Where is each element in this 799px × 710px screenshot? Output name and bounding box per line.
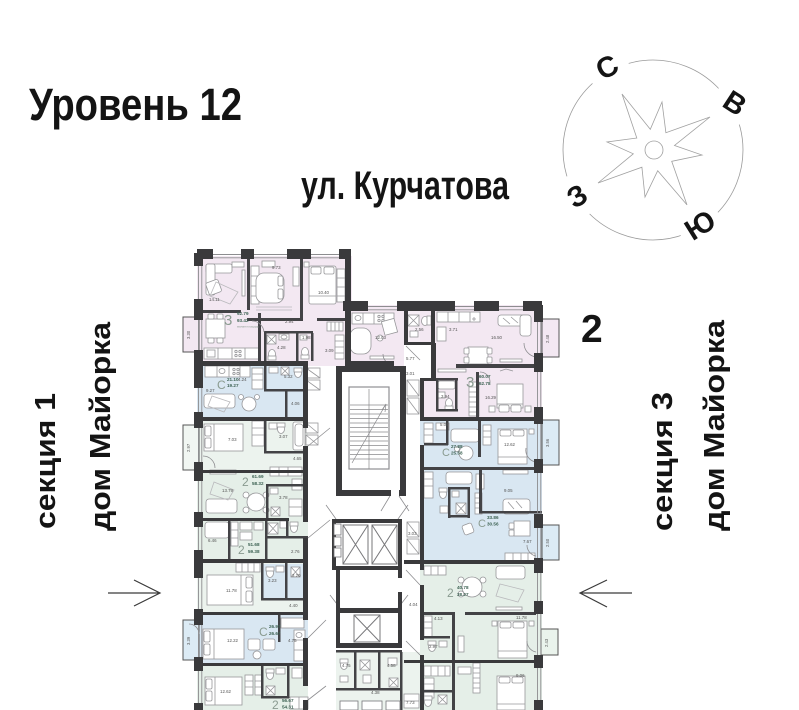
svg-text:4.13: 4.13 [434,616,443,621]
svg-text:2.94: 2.94 [285,319,294,324]
svg-text:58.32: 58.32 [252,481,264,486]
svg-text:7.73: 7.73 [406,700,415,705]
svg-text:12.62: 12.62 [220,689,232,694]
svg-text:12.62: 12.62 [504,442,516,447]
svg-text:ул. Курчатова: ул. Курчатова [301,164,510,208]
svg-text:9.05: 9.05 [504,488,513,493]
svg-text:11.78: 11.78 [516,615,527,620]
svg-text:С: С [442,447,450,459]
svg-text:3.71: 3.71 [449,327,458,332]
svg-text:С: С [259,625,268,639]
svg-text:2: 2 [581,308,603,351]
svg-text:2: 2 [238,543,245,557]
svg-text:2: 2 [447,586,454,600]
svg-text:2.50: 2.50 [545,538,550,547]
svg-text:26.67: 26.67 [269,631,281,636]
svg-text:27.88: 27.88 [451,444,463,449]
svg-text:С: С [478,518,486,530]
svg-text:56.67: 56.67 [282,698,294,703]
svg-text:10.40: 10.40 [318,290,330,295]
svg-text:7.03: 7.03 [228,437,237,442]
svg-text:25.58: 25.58 [451,451,463,456]
svg-text:30.56: 30.56 [487,522,499,527]
svg-text:2.48: 2.48 [545,334,550,343]
svg-text:19.27: 19.27 [227,383,239,388]
svg-text:4.38: 4.38 [371,690,380,695]
svg-text:4.58: 4.58 [387,663,396,668]
svg-text:62.78: 62.78 [479,381,491,386]
svg-text:33.86: 33.86 [487,515,499,520]
svg-text:13.79: 13.79 [222,488,234,493]
svg-text:Уровень 12: Уровень 12 [29,79,242,130]
svg-text:2: 2 [272,698,279,710]
svg-text:7.67: 7.67 [523,539,532,544]
svg-text:секция 1: секция 1 [30,393,62,529]
svg-text:3: 3 [224,312,232,329]
svg-text:6.46: 6.46 [208,538,217,543]
svg-text:3.01: 3.01 [406,371,415,376]
svg-text:4.24: 4.24 [238,377,247,382]
svg-text:54.31: 54.31 [282,705,294,710]
svg-text:9.27: 9.27 [206,388,215,393]
svg-text:61.69: 61.69 [252,474,264,479]
svg-text:16.50: 16.50 [491,335,503,340]
svg-text:4.75: 4.75 [342,663,351,668]
svg-text:9.73: 9.73 [272,265,281,270]
svg-text:дом Майорка: дом Майорка [85,321,117,531]
svg-text:93.42: 93.42 [237,318,249,323]
svg-text:3.78: 3.78 [279,495,288,500]
svg-text:26.97: 26.97 [269,624,281,629]
svg-text:3.94: 3.94 [441,394,450,399]
svg-text:жилая площадь: жилая площадь [237,325,260,329]
svg-text:2.56: 2.56 [415,327,424,332]
svg-text:5.32: 5.32 [284,374,293,379]
svg-text:60.07: 60.07 [479,374,491,379]
svg-text:3.20: 3.20 [292,573,301,578]
svg-text:12.22: 12.22 [227,638,239,643]
svg-text:2.43: 2.43 [544,638,549,647]
svg-text:12.03: 12.03 [375,335,387,340]
svg-text:51.68: 51.68 [248,542,260,547]
svg-text:1.98: 1.98 [302,335,311,340]
svg-text:2: 2 [242,475,249,489]
svg-text:4.28: 4.28 [277,345,286,350]
svg-text:3.07: 3.07 [279,434,288,439]
svg-text:3.39: 3.39 [186,636,191,645]
svg-text:5.04: 5.04 [440,422,449,427]
svg-text:3.56: 3.56 [545,438,550,447]
svg-text:4.65: 4.65 [293,456,302,461]
svg-text:дом Майорка: дом Майорка [699,319,731,531]
svg-text:С: С [217,378,226,392]
svg-text:3.23: 3.23 [268,578,277,583]
svg-text:4.06: 4.06 [291,401,300,406]
svg-text:59.38: 59.38 [248,549,260,554]
svg-text:92.79: 92.79 [237,311,249,316]
svg-text:38.27: 38.27 [457,592,469,597]
svg-text:секция 3: секция 3 [647,392,679,531]
svg-text:2.97: 2.97 [429,644,438,649]
svg-text:9.06: 9.06 [516,673,525,678]
svg-text:3.09: 3.09 [325,348,334,353]
svg-text:4.40: 4.40 [289,603,298,608]
svg-text:14.11: 14.11 [209,297,220,302]
svg-text:3.03: 3.03 [408,531,417,536]
svg-text:40.78: 40.78 [457,585,469,590]
svg-text:2.76: 2.76 [291,549,300,554]
svg-text:3: 3 [466,374,474,391]
svg-text:5.77: 5.77 [406,356,415,361]
svg-text:4.75: 4.75 [288,638,297,643]
svg-text:3.30: 3.30 [186,330,191,339]
svg-text:16.29: 16.29 [485,395,497,400]
svg-text:4.04: 4.04 [409,602,418,607]
svg-text:2.97: 2.97 [186,443,191,452]
svg-text:11.78: 11.78 [226,588,237,593]
